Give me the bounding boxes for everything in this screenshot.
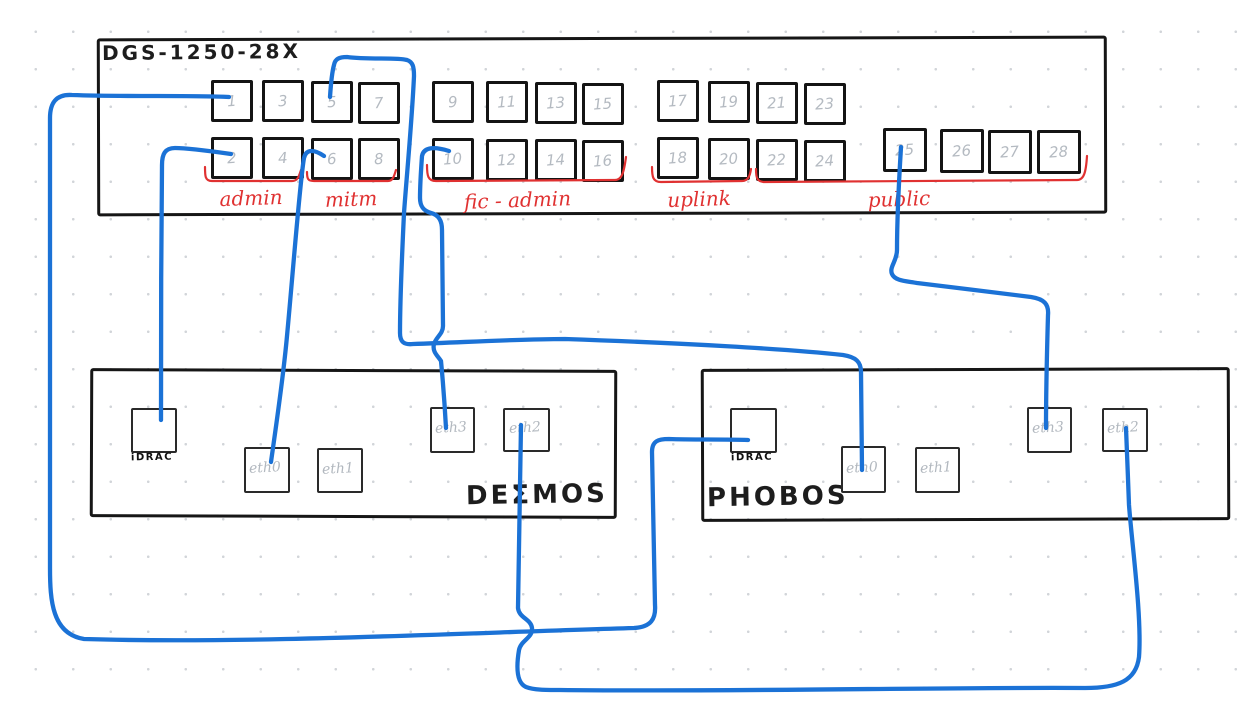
group-label-fic-admin[interactable]: fic - admin — [445, 185, 591, 214]
deimos-eth2[interactable]: eth2 — [503, 408, 550, 452]
phobos-eth1[interactable]: eth1 — [915, 447, 960, 493]
port-number: 15 — [593, 94, 613, 113]
switch-title[interactable]: DGS-1250-28X — [102, 39, 301, 65]
port-number: 14 — [546, 150, 566, 169]
switch-port-11[interactable]: 11 — [486, 81, 528, 123]
phobos-eth3-label: eth3 — [1031, 419, 1064, 437]
switch-port-6[interactable]: 6 — [311, 138, 353, 180]
switch-port-9[interactable]: 9 — [432, 81, 474, 123]
switch-port-24[interactable]: 24 — [804, 140, 846, 182]
port-number: 24 — [815, 151, 835, 170]
phobos-eth0-label: eth0 — [845, 459, 878, 477]
port-number: 12 — [497, 150, 517, 169]
switch-port-3[interactable]: 3 — [262, 80, 304, 122]
switch-port-27[interactable]: 27 — [988, 130, 1032, 174]
port-number: 28 — [1049, 142, 1069, 161]
switch-port-5[interactable]: 5 — [311, 81, 353, 123]
switch-port-28[interactable]: 28 — [1037, 130, 1081, 174]
phobos-idrac-label: iDRAC — [726, 452, 778, 464]
port-number: 5 — [327, 93, 338, 112]
port-number: 2 — [227, 149, 238, 168]
port-number: 20 — [719, 149, 739, 168]
phobos-eth1-label: eth1 — [919, 459, 952, 477]
deimos-eth1-label: eth1 — [322, 460, 355, 478]
phobos-eth2-label: eth2 — [1107, 419, 1140, 437]
deimos-eth3-label: eth3 — [434, 419, 467, 437]
group-label-uplink[interactable]: uplink — [660, 186, 739, 213]
switch-port-12[interactable]: 12 — [486, 139, 528, 181]
port-number: 6 — [327, 150, 338, 169]
deimos-eth1[interactable]: eth1 — [317, 448, 363, 493]
port-number: 16 — [593, 151, 613, 170]
drawing-canvas[interactable]: DGS-1250-28X 1 2 3 4 5 6 7 8 9 10 11 12 … — [0, 0, 1256, 703]
switch-port-23[interactable]: 23 — [804, 83, 846, 125]
server-deimos-name[interactable]: DEΣMOS — [466, 479, 608, 511]
phobos-idrac[interactable] — [730, 408, 777, 453]
phobos-eth0[interactable]: eth0 — [841, 446, 886, 493]
phobos-eth2[interactable]: eth2 — [1102, 408, 1148, 452]
port-number: 26 — [952, 141, 972, 160]
group-label-public[interactable]: public — [860, 186, 939, 213]
switch-port-14[interactable]: 14 — [535, 139, 577, 181]
switch-port-18[interactable]: 18 — [657, 137, 699, 179]
port-number: 8 — [374, 150, 385, 169]
switch-port-25[interactable]: 25 — [883, 128, 927, 172]
group-label-mitm[interactable]: mitm — [313, 186, 390, 213]
deimos-eth0-label: eth0 — [249, 459, 282, 477]
deimos-idrac-label: iDRAC — [126, 452, 178, 464]
switch-port-7[interactable]: 7 — [358, 82, 400, 124]
group-label-admin[interactable]: admin — [213, 185, 290, 212]
port-number: 11 — [497, 92, 517, 111]
port-number: 9 — [448, 93, 459, 112]
switch-port-19[interactable]: 19 — [708, 81, 750, 123]
port-number: 21 — [767, 93, 787, 112]
phobos-eth3[interactable]: eth3 — [1027, 407, 1072, 453]
port-number: 27 — [1000, 142, 1020, 161]
port-number: 10 — [443, 149, 463, 168]
port-number: 7 — [374, 94, 385, 113]
switch-port-1[interactable]: 1 — [211, 80, 253, 122]
switch-port-2[interactable]: 2 — [211, 137, 253, 179]
port-number: 22 — [767, 150, 787, 169]
switch-port-4[interactable]: 4 — [262, 137, 304, 179]
port-number: 17 — [668, 91, 688, 110]
switch-port-26[interactable]: 26 — [940, 129, 984, 173]
port-number: 3 — [278, 92, 289, 111]
port-number: 19 — [719, 92, 739, 111]
port-number: 1 — [227, 92, 238, 111]
switch-port-21[interactable]: 21 — [756, 82, 798, 124]
switch-port-13[interactable]: 13 — [535, 82, 577, 124]
port-number: 18 — [668, 148, 688, 167]
deimos-eth2-label: eth2 — [508, 419, 541, 437]
deimos-eth0[interactable]: eth0 — [244, 447, 290, 493]
switch-port-20[interactable]: 20 — [708, 138, 750, 180]
port-number: 25 — [895, 140, 915, 159]
switch-port-22[interactable]: 22 — [756, 139, 798, 181]
switch-port-17[interactable]: 17 — [657, 80, 699, 122]
switch-port-10[interactable]: 10 — [432, 138, 474, 180]
deimos-idrac[interactable] — [131, 408, 177, 453]
port-number: 4 — [278, 149, 289, 168]
switch-port-8[interactable]: 8 — [358, 138, 400, 180]
switch-port-15[interactable]: 15 — [582, 83, 624, 125]
switch-port-16[interactable]: 16 — [582, 140, 624, 182]
deimos-eth3[interactable]: eth3 — [430, 407, 475, 453]
server-phobos-name[interactable]: PHOBOS — [707, 481, 849, 513]
port-number: 23 — [815, 94, 835, 113]
port-number: 13 — [546, 93, 566, 112]
